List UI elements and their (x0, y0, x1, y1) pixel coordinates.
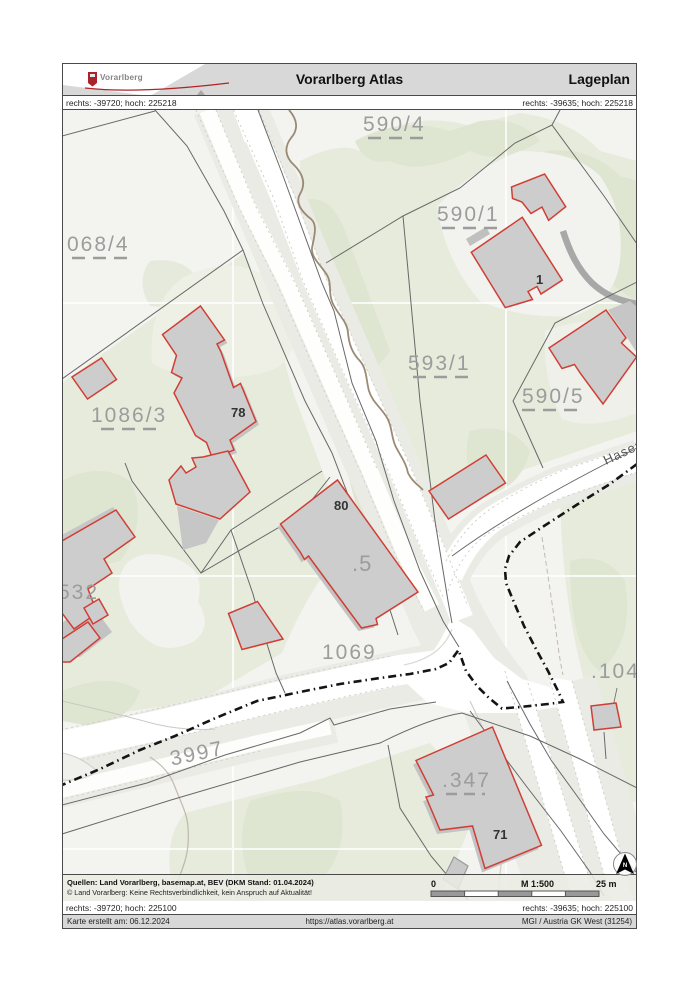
svg-text:1086/3: 1086/3 (91, 404, 167, 427)
svg-text:0: 0 (431, 879, 436, 889)
svg-text:M 1:500: M 1:500 (521, 879, 554, 889)
svg-text:N: N (623, 863, 627, 869)
svg-text:590/1: 590/1 (437, 203, 500, 226)
svg-text:71: 71 (493, 827, 507, 842)
svg-text:1069: 1069 (322, 641, 377, 664)
svg-text:1: 1 (536, 272, 543, 287)
svg-text:068/4: 068/4 (67, 233, 130, 256)
svg-text:.347: .347 (442, 769, 491, 792)
svg-text:.104: .104 (591, 660, 636, 683)
svg-text:80: 80 (334, 498, 348, 513)
svg-text:590/5: 590/5 (522, 385, 585, 408)
svg-text:590/4: 590/4 (363, 113, 426, 136)
svg-text:593/1: 593/1 (408, 352, 471, 375)
svg-text:.5: .5 (352, 551, 372, 576)
svg-text:532: 532 (63, 581, 99, 604)
svg-text:25 m: 25 m (596, 879, 617, 889)
svg-text:78: 78 (231, 405, 245, 420)
